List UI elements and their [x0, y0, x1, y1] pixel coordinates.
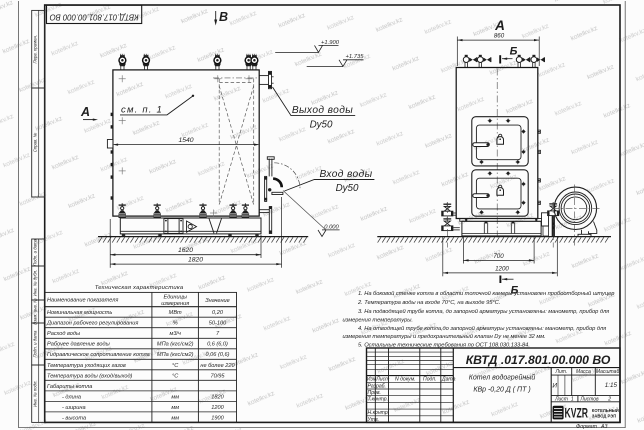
svg-text:°С: °С — [172, 363, 179, 369]
svg-text:Лит.: Лит. — [555, 369, 568, 375]
svg-text:1: 1 — [571, 396, 574, 402]
svg-text:Температура уходящих газов: Температура уходящих газов — [47, 363, 126, 369]
svg-text:- ширина: - ширина — [62, 405, 86, 411]
svg-text:Выход воды: Выход воды — [292, 105, 353, 116]
svg-text:1. На боковой стенке котла в: 1. На боковой стенке котла в области топ… — [358, 290, 615, 297]
svg-text:Дата: Дата — [441, 377, 456, 383]
svg-text:1540: 1540 — [178, 137, 193, 144]
svg-text:Пров.: Пров. — [368, 390, 381, 396]
svg-text:Взам. инв. №: Взам. инв. № — [33, 298, 38, 325]
svg-text:А3: А3 — [600, 424, 608, 430]
svg-text:1620: 1620 — [178, 247, 193, 254]
svg-text:не более 220: не более 220 — [200, 363, 235, 369]
svg-text:КВТД.017.801.00.000 ВО: КВТД.017.801.00.000 ВО — [50, 12, 139, 21]
svg-text:см. п. 1: см. п. 1 — [121, 105, 163, 116]
svg-text:Разраб.: Разраб. — [368, 383, 386, 389]
svg-text:м3/ч: м3/ч — [169, 331, 180, 337]
svg-text:Dy50: Dy50 — [310, 119, 333, 130]
svg-text:измерения температуры.: измерения температуры. — [343, 317, 413, 323]
svg-text:мм: мм — [171, 405, 179, 411]
svg-text:В: В — [219, 10, 228, 24]
svg-text:- высота: - высота — [62, 415, 86, 421]
svg-text:А: А — [494, 18, 505, 33]
svg-text:Подп. и дата: Подп. и дата — [33, 238, 38, 266]
svg-text:70/95: 70/95 — [211, 373, 226, 379]
svg-text:Диапазон рабочего регулировани: Диапазон рабочего регулирования — [46, 321, 138, 327]
svg-text:Наименование показателя: Наименование показателя — [47, 298, 118, 304]
svg-text:- длина: - длина — [62, 394, 81, 400]
svg-text:Dy50: Dy50 — [336, 183, 359, 194]
svg-text:Вход воды: Вход воды — [319, 169, 372, 180]
svg-text:%: % — [173, 321, 178, 327]
svg-text:0.000: 0.000 — [324, 224, 339, 230]
svg-text:50-100: 50-100 — [209, 321, 227, 327]
svg-text:Перв. примен.: Перв. примен. — [33, 35, 38, 64]
svg-text:Габариты котла: Габариты котла — [47, 384, 92, 390]
svg-text:0,06 (0,6): 0,06 (0,6) — [206, 352, 230, 358]
svg-text:Лист: Лист — [375, 377, 389, 383]
svg-text:2. Температура воды на входе: 2. Температура воды на входе 70°С, на вы… — [357, 300, 500, 306]
svg-text:1820: 1820 — [211, 394, 224, 400]
svg-text:1200: 1200 — [211, 405, 224, 411]
svg-text:Номинальная мощность: Номинальная мощность — [47, 310, 112, 316]
svg-text:700: 700 — [493, 253, 504, 260]
svg-text:2: 2 — [607, 396, 611, 402]
svg-text:мм: мм — [171, 415, 179, 421]
svg-text:4. На отводящей трубе котла,д: 4. На отводящей трубе котла,до запорной … — [358, 325, 606, 332]
svg-text:Инв. № подл.: Инв. № подл. — [33, 380, 38, 407]
svg-text:Подп. и дата: Подп. и дата — [33, 330, 38, 358]
svg-text:°С: °С — [172, 373, 179, 379]
svg-text:Лист: Лист — [554, 396, 568, 402]
svg-text:МВт: МВт — [169, 310, 182, 316]
svg-text:Инв. № дубл.: Инв. № дубл. — [33, 270, 38, 296]
svg-text:Рабочее давление воды: Рабочее давление воды — [47, 342, 110, 348]
svg-text:Справ. №: Справ. № — [33, 132, 38, 152]
svg-text:МПа (кгс/см2): МПа (кгс/см2) — [157, 342, 194, 348]
svg-text:Единицы: Единицы — [163, 295, 186, 301]
svg-text:мм: мм — [171, 394, 179, 400]
svg-text:+1.735: +1.735 — [346, 54, 365, 60]
svg-text:КВТД .017.801.00.000 ВО: КВТД .017.801.00.000 ВО — [466, 353, 611, 367]
svg-text:Масса: Масса — [576, 369, 591, 375]
svg-text:1200: 1200 — [495, 265, 509, 272]
svg-text:Б: Б — [510, 46, 518, 58]
svg-text:Расход воды: Расход воды — [47, 331, 80, 337]
svg-text:860: 860 — [494, 33, 505, 40]
svg-text:KVZR: KVZR — [565, 406, 589, 421]
svg-text:МПа (кгс/см2): МПа (кгс/см2) — [157, 352, 194, 358]
svg-text:измерения температуры и предох: измерения температуры и предохранительны… — [343, 333, 546, 340]
svg-text:ЗАВОД РЭП: ЗАВОД РЭП — [592, 413, 616, 418]
svg-text:А: А — [80, 105, 90, 119]
svg-text:0,20: 0,20 — [212, 310, 224, 316]
svg-text:1900: 1900 — [211, 415, 224, 421]
svg-text:Листов: Листов — [579, 396, 599, 402]
svg-text:0,6 (6,0): 0,6 (6,0) — [207, 342, 228, 348]
svg-text:Подп.: Подп. — [423, 377, 437, 383]
svg-text:Масштаб: Масштаб — [596, 369, 620, 375]
svg-text:3. На подводящей трубе котла,: 3. На подводящей трубе котла, до запорно… — [358, 308, 609, 315]
svg-text:измерения: измерения — [161, 301, 189, 307]
svg-text:1:15: 1:15 — [605, 382, 618, 389]
svg-text:Температура воды (вход/выход): Температура воды (вход/выход) — [47, 373, 133, 379]
svg-text:Т.контр.: Т.контр. — [368, 397, 389, 403]
svg-text:Значение: Значение — [205, 298, 230, 304]
svg-text:+1.900: +1.900 — [321, 40, 340, 46]
svg-text:Н.контр.: Н.контр. — [368, 410, 390, 416]
svg-text:Гидравлическое сопротивление к: Гидравлическое сопротивление котла — [47, 352, 150, 358]
svg-text:Котел водогрейный: Котел водогрейный — [469, 374, 536, 382]
svg-text:Утв.: Утв. — [368, 417, 380, 423]
svg-text:Формат: Формат — [576, 424, 598, 430]
svg-text:N докум.: N докум. — [395, 377, 416, 383]
svg-text:1820: 1820 — [188, 257, 203, 264]
svg-text:И: И — [552, 383, 557, 390]
svg-text:Техническая характеристика: Техническая характеристика — [95, 285, 184, 291]
svg-text:КВр -0,20 Д ( ПТ ): КВр -0,20 Д ( ПТ ) — [473, 387, 530, 394]
